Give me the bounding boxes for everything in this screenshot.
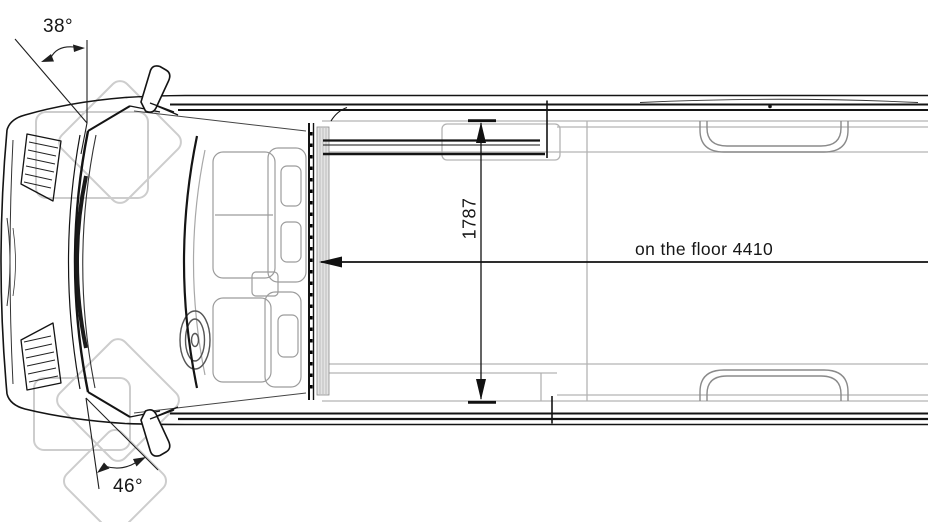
dimension-floor-length: [319, 257, 928, 268]
cab-seats: [194, 148, 307, 387]
diagram-canvas: 38° 46° 1787 on the floor 4410: [0, 0, 928, 522]
watermark-shapes: [34, 77, 185, 522]
angle-38-label: 38°: [33, 17, 83, 36]
angle-annotation-top: [15, 39, 87, 154]
floor-length-label: on the floor 4410: [635, 241, 773, 259]
side-mirrors: [141, 66, 178, 456]
van-top-view-drawing: [0, 0, 928, 522]
headlights: [21, 134, 61, 390]
windshield-wipers: [75, 131, 96, 392]
angle-46-label: 46°: [103, 477, 153, 496]
cargo-floor-lines: [322, 121, 928, 401]
steering-wheel: [180, 311, 210, 369]
wheel-arches: [700, 121, 848, 401]
interior-width-label: 1787: [457, 187, 482, 251]
